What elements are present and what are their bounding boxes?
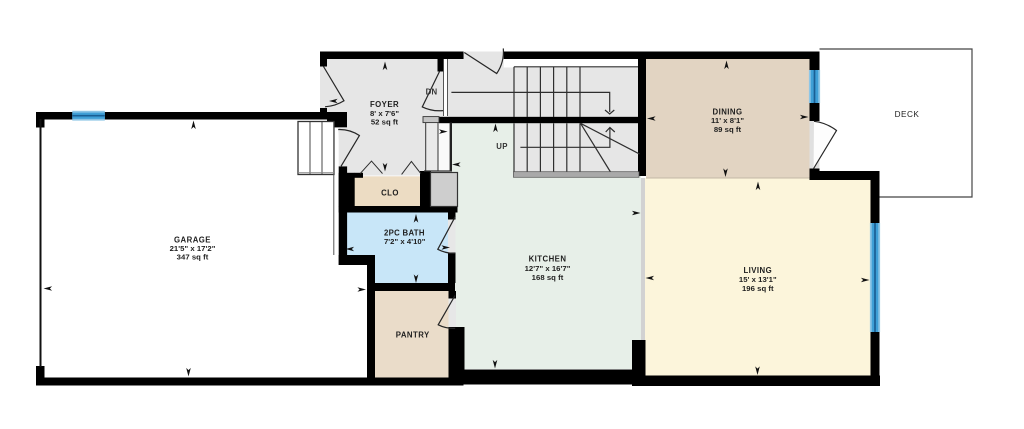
svg-text:DN: DN	[426, 87, 438, 96]
svg-text:CLO: CLO	[381, 188, 399, 197]
svg-text:7'2" x 4'10": 7'2" x 4'10"	[384, 237, 426, 246]
svg-text:GARAGE: GARAGE	[174, 235, 211, 244]
svg-text:2PC BATH: 2PC BATH	[384, 228, 425, 237]
svg-text:168 sq ft: 168 sq ft	[532, 273, 564, 282]
svg-text:52 sq ft: 52 sq ft	[371, 117, 399, 126]
svg-text:UP: UP	[496, 142, 507, 151]
svg-text:15' x 13'1": 15' x 13'1"	[739, 275, 777, 284]
svg-text:12'7" x 16'7": 12'7" x 16'7"	[525, 264, 571, 273]
svg-text:KITCHEN: KITCHEN	[529, 254, 567, 263]
svg-text:DECK: DECK	[895, 110, 920, 119]
svg-text:196 sq ft: 196 sq ft	[742, 284, 774, 293]
svg-text:PANTRY: PANTRY	[396, 330, 430, 339]
svg-text:347 sq ft: 347 sq ft	[177, 253, 209, 262]
svg-text:LIVING: LIVING	[743, 266, 772, 275]
svg-text:DINING: DINING	[713, 107, 743, 116]
svg-text:89 sq ft: 89 sq ft	[714, 125, 742, 134]
svg-text:FOYER: FOYER	[370, 100, 399, 109]
svg-text:11' x 8'1": 11' x 8'1"	[711, 116, 744, 125]
